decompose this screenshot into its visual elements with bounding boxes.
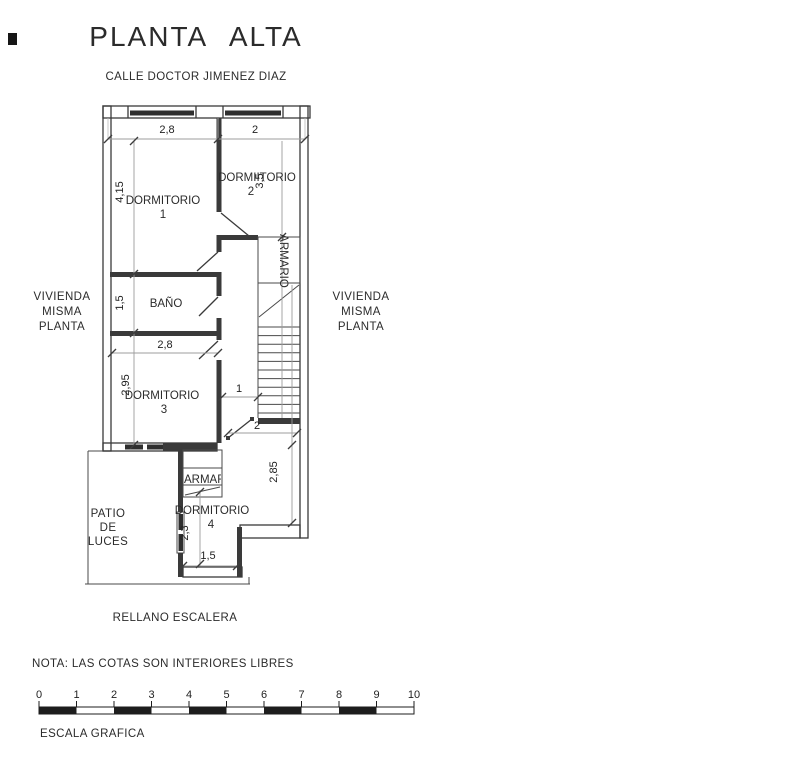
scale-tick-8: 8 [336, 689, 342, 701]
neighbor-right-line2: MISMA [341, 306, 381, 318]
doors [197, 213, 254, 440]
note-label: NOTA: LAS COTAS SON INTERIORES LIBRES [32, 658, 294, 670]
dim-dorm2-width: 2 [252, 124, 258, 136]
dim-dorm3-width: 2,8 [157, 339, 172, 351]
room-dormitorio3-name: DORMITORIO [125, 390, 200, 402]
scale-tick-2: 2 [111, 689, 117, 701]
neighbor-right-line3: PLANTA [338, 321, 384, 333]
scale-tick-1: 1 [73, 689, 79, 701]
room-bano-name: BAÑO [150, 297, 183, 310]
dim-dorm4-width: 1,5 [200, 550, 215, 562]
scale-tick-5: 5 [223, 689, 229, 701]
scale-tick-7: 7 [298, 689, 304, 701]
floor-plan-drawing: PLANTA ALTA CALLE DOCTOR JIMENEZ DIAZ [0, 0, 804, 768]
dim-dorm1-height: 4,15 [114, 181, 126, 202]
door-dorm2 [221, 213, 249, 236]
floor-plan-page: PLANTA ALTA CALLE DOCTOR JIMENEZ DIAZ [0, 0, 804, 768]
street-label: CALLE DOCTOR JIMENEZ DIAZ [105, 71, 286, 83]
door-dorm4 [228, 419, 252, 438]
room-dormitorio3-number: 3 [161, 404, 167, 416]
neighbor-left-line2: MISMA [42, 306, 82, 318]
neighbor-left-line1: VIVIENDA [34, 291, 91, 303]
dim-landing-width: 2 [254, 420, 260, 432]
scale-tick-4: 4 [186, 689, 192, 701]
patio-line2: DE [100, 522, 117, 534]
room-dormitorio4-number: 4 [208, 519, 215, 531]
scale-tick-10: 10 [408, 689, 420, 701]
window-dorm2 [225, 111, 281, 116]
window-dorm3-b [147, 445, 163, 450]
closet-lower-label: ARMARIO [184, 474, 238, 486]
scale-bar: 0 1 2 3 4 5 6 7 8 9 10 ESCALA GRAFICA [36, 689, 420, 740]
door-bano [199, 297, 218, 316]
page-title: PLANTA ALTA [89, 21, 302, 52]
room-dormitorio1-number: 1 [160, 209, 166, 221]
dim-dorm4-height: 2,85 [268, 461, 280, 482]
room-dormitorio2-number: 2 [248, 186, 254, 198]
room-dormitorio2-name: DORMIITORIO [218, 172, 296, 184]
dim-bano-height: 1,5 [114, 295, 126, 310]
room-dormitorio4-name: DORMITORIO [175, 505, 250, 517]
neighbor-left-line3: PLANTA [39, 321, 85, 333]
patio-line1: PATIO [91, 508, 126, 520]
door-dorm1 [197, 252, 218, 271]
stair-break-line [259, 285, 299, 317]
rellano-label: RELLANO ESCALERA [113, 612, 238, 624]
closet-stair-label: ARMARIO [277, 234, 289, 288]
scale-caption: ESCALA GRAFICA [40, 728, 145, 740]
dimension-labels: 2,8 2 4,15 3,5 1,5 2,8 2,95 1 2 2,85 2,3… [114, 124, 280, 562]
scale-tick-6: 6 [261, 689, 267, 701]
neighbor-right-line1: VIVIENDA [333, 291, 390, 303]
dim-patio-window: 2,3 [179, 525, 191, 540]
dim-hall-width: 1 [236, 383, 242, 395]
closet-upper-label: ARMARIO [167, 455, 221, 467]
scan-artifact [8, 33, 17, 45]
scale-tick-0: 0 [36, 689, 42, 701]
patio-line3: LUCES [88, 536, 128, 548]
scale-tick-3: 3 [148, 689, 154, 701]
room-dormitorio1-name: DORMITORIO [126, 195, 201, 207]
dim-dorm1-width: 2,8 [159, 124, 174, 136]
window-dorm1 [130, 111, 194, 116]
scale-tick-9: 9 [373, 689, 379, 701]
